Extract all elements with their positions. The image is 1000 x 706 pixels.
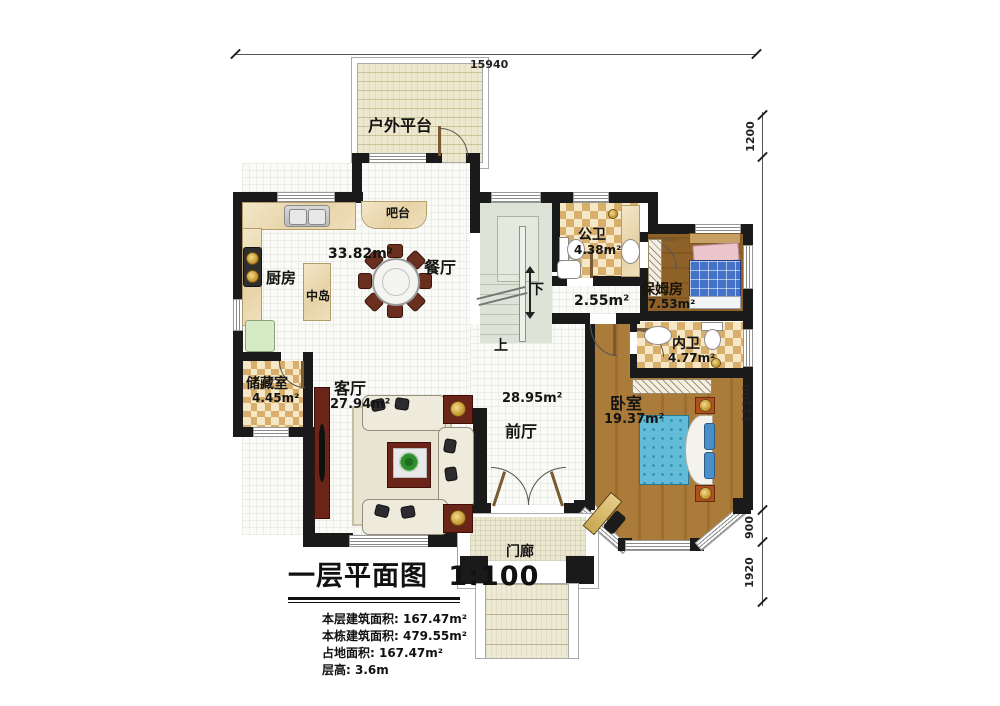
dimension-line-right [762,112,763,606]
sofa-pillow [444,439,456,453]
room-label-platform: 户外平台 [368,118,432,134]
wall [630,322,637,332]
nightstand-ornament [700,488,711,499]
stove-burner [247,271,258,282]
wall [303,533,353,547]
sofa-pillow [401,506,415,518]
sink-basin [289,209,307,225]
info-floor-area: 本层建筑面积: 167.47m² [322,611,539,628]
info-storey-height: 层高: 3.6m [322,662,539,679]
wall [640,311,753,321]
window [254,428,288,436]
window-bay-front [626,541,698,550]
wall [630,368,753,378]
window [492,193,540,202]
stair-arrow-down-icon [525,312,535,319]
dining-table-ring [382,268,410,296]
window [744,246,752,288]
wall [593,276,640,286]
room-label-storage: 储藏室 [246,377,288,391]
window [278,193,334,202]
wall-bay-corner [733,498,751,514]
wall [233,192,243,362]
dimension-value-right-2: 900 [743,516,756,539]
plant [399,452,419,472]
room-label-bar: 吧台 [386,207,410,219]
wall [585,324,595,510]
toilet-bowl [705,330,720,349]
area-label-corridor: 2.55m² [574,294,629,308]
area-label-inner-bath: 4.77m² [668,352,715,364]
wall [640,232,648,242]
plan-scale: 1:100 [448,561,539,592]
area-label-dining: 33.82m² [328,247,393,261]
stair-label-down: 下 [530,283,544,297]
area-label-foyer: 28.95m² [502,392,562,405]
dimension-value-top: 15940 [470,58,508,71]
dining-chair [387,304,403,318]
foyer-floor [470,324,585,505]
info-building-area: 本栋建筑面积: 479.55m² [322,628,539,645]
side-table-ornament [451,402,465,416]
sink-basin [308,209,326,225]
porch-column [566,556,594,584]
area-label-bedroom: 19.37m² [604,413,664,426]
wall [552,313,590,324]
window [696,225,740,233]
area-label-public-bath: 4.38m² [574,244,621,256]
stair-arrow-up-icon [525,266,535,273]
side-table-ornament [451,511,465,525]
dimension-value-right-0: 1200 [744,121,757,152]
plan-title: 一层平面图 [288,561,428,592]
porch-step-rail [568,584,578,658]
dimension-line-top [235,54,757,55]
sofa-pillow [395,398,408,410]
room-label-nanny: 保姆房 [641,283,683,297]
room-label-inner-bath: 内卫 [672,337,700,351]
nightstand-ornament [700,400,711,411]
bed-pillow [704,423,715,450]
fridge [245,320,275,352]
room-label-living: 客厅 [334,381,366,397]
bath-sink [622,240,639,263]
bath-sink [645,327,671,344]
bathtub [558,261,580,278]
area-label-nanny: 7.53m² [648,298,695,310]
wall [303,427,315,547]
nanny-bed-headboard [690,234,740,243]
nanny-bed-sheet [690,297,740,308]
dining-chair [358,273,372,289]
title-underline-thin [288,602,460,603]
room-label-dining: 餐厅 [424,260,456,276]
nanny-bed-blanket [690,261,740,298]
room-label-island: 中岛 [306,290,330,302]
floorplan-page: 户外平台 吧台 33.82m² 餐厅 厨房 中岛 公卫 4.38m² 2.55m… [0,0,1000,706]
bedroom-wardrobe [633,380,711,393]
dimension-value-right-3: 1920 [743,557,756,588]
window [234,300,242,330]
room-label-kitchen: 厨房 [266,271,296,286]
window [744,330,752,366]
area-label-living: 27.94m² [330,398,390,411]
stair-label-up: 上 [494,339,508,353]
stair-rail [519,226,526,342]
window [574,193,608,202]
sofa-right [438,427,474,509]
stair-treads [480,274,520,343]
window [350,536,430,546]
title-underline [288,597,460,600]
tv [319,424,325,482]
title-block: 一层平面图 1:100 本层建筑面积: 167.47m² 本栋建筑面积: 479… [288,554,539,679]
stove-burner [247,253,258,264]
area-label-storage: 4.45m² [252,392,299,404]
bed-pillow [704,452,715,479]
room-label-bedroom: 卧室 [610,396,642,412]
window [370,154,428,162]
info-footprint-area: 占地面积: 167.47m² [322,645,539,662]
wall [233,352,243,436]
room-label-foyer: 前厅 [505,424,537,440]
toilet-tank [560,238,568,260]
room-label-public-bath: 公卫 [578,228,606,242]
towel-ring [609,210,617,218]
toilet-tank [702,323,722,330]
sofa-pillow [445,467,457,480]
dimension-value-right-1: 11100 [741,384,754,422]
